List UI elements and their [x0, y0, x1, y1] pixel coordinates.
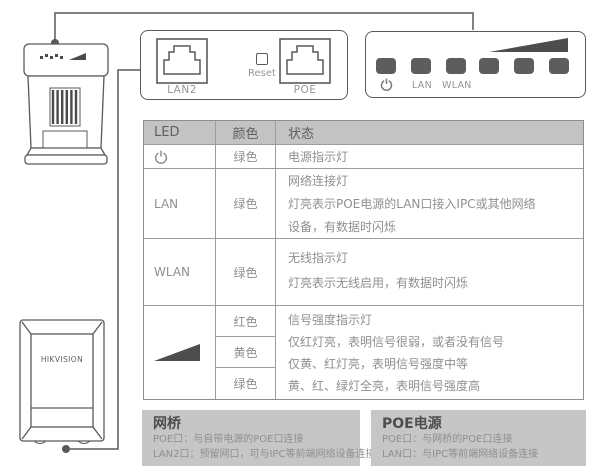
signal-color-cells: 红色 黄色 绿色 [216, 306, 276, 399]
power-status: 电源指示灯 [276, 145, 583, 169]
bridge-rear-device [24, 44, 108, 164]
wlan-row-label: WLAN [144, 239, 216, 306]
lan2-port-icon [156, 38, 208, 84]
callout-dot-top [51, 39, 59, 47]
signal-status-line: 黄、红、绿灯全亮，表明信号强度高 [288, 375, 577, 397]
port-panel: LAN2 Reset POE [140, 30, 348, 100]
lan-status: 网络连接灯 灯亮表示POE电源的LAN口接入IPC或其他网络 设备，有数据时闪烁 [276, 169, 583, 239]
wlan-status: 无线指示灯 灯亮表示无线启用，有数据时闪烁 [276, 239, 583, 306]
poe-port-icon [279, 38, 331, 84]
wlan-color: 绿色 [216, 239, 276, 306]
lan-row-label: LAN [144, 169, 216, 239]
signal-color-red: 红色 [216, 306, 275, 337]
wlan-led-label: WLAN [442, 80, 472, 91]
power-led [376, 58, 396, 74]
header-status: 状态 [276, 121, 583, 145]
signal-led-red [479, 58, 499, 74]
signal-color-green: 绿色 [216, 368, 275, 399]
power-icon [154, 150, 168, 164]
signal-wedge-icon [489, 38, 568, 52]
bridge-rear-led-marks [40, 53, 86, 60]
signal-status: 信号强度指示灯 仅红灯亮，表明信号很弱，或者没有信号 仅黄、红灯亮，表明信号强度… [276, 306, 583, 399]
header-color: 颜色 [216, 121, 276, 145]
signal-led-yellow [514, 58, 534, 74]
brand-label: HIKVISION [41, 355, 83, 364]
lan-color: 绿色 [216, 169, 276, 239]
poe-note-line: POE口：与网桥的POE口连接 [382, 433, 586, 448]
power-row-icon-cell [144, 145, 216, 169]
wlan-status-line: 无线指示灯 [288, 246, 577, 271]
lan-status-line: 设备，有数据时闪烁 [288, 216, 577, 239]
lan-led-label: LAN [412, 80, 432, 91]
bridge-rear-vents [53, 90, 76, 124]
poe-note-section: POE电源 POE口：与网桥的POE口连接 LAN口：与IPC等前端网络设备连接 [371, 410, 586, 466]
bridge-front-device [20, 320, 104, 444]
bridge-note-line: LAN2口：预留网口，可与IPC等前端网络设备连接 [153, 448, 360, 463]
callout-dot-bottom [62, 445, 70, 453]
signal-wedge-icon [154, 344, 200, 361]
lan-status-line: 网络连接灯 [288, 170, 577, 193]
header-led: LED [144, 121, 216, 145]
bridge-note-section: 网桥 POE口：与自带电源的POE口连接 LAN2口：预留网口，可与IPC等前端… [142, 410, 360, 466]
bridge-note-line: POE口：与自带电源的POE口连接 [153, 433, 360, 448]
lan-led [411, 58, 431, 74]
lan2-port-label: LAN2 [156, 84, 208, 96]
reset-button [256, 53, 268, 65]
poe-note-title: POE电源 [382, 415, 586, 433]
signal-status-line: 仅红灯亮，表明信号很弱，或者没有信号 [288, 331, 577, 353]
bridge-note-title: 网桥 [153, 415, 360, 433]
signal-color-yellow: 黄色 [216, 337, 275, 368]
wlan-led [446, 58, 466, 74]
led-indicator-panel: LAN WLAN [365, 31, 586, 98]
power-icon [380, 78, 393, 91]
lan-status-line: 灯亮表示POE电源的LAN口接入IPC或其他网络 [288, 193, 577, 216]
power-color: 绿色 [216, 145, 276, 169]
poe-note-line: LAN口：与IPC等前端网络设备连接 [382, 448, 586, 463]
led-status-table: LED 颜色 状态 绿色 电源指示灯 LAN 绿色 网络连接灯 灯亮表示POE电… [143, 120, 584, 400]
signal-status-line: 信号强度指示灯 [288, 309, 577, 331]
signal-led-green [549, 58, 569, 74]
poe-port-label: POE [279, 84, 331, 96]
wlan-status-line: 灯亮表示无线启用，有数据时闪烁 [288, 271, 577, 296]
manual-diagram-page: HIKVISION LAN2 Reset POE LAN WLAN [0, 0, 600, 474]
signal-row-icon-cell [144, 306, 216, 399]
signal-status-line: 仅黄、红灯亮，表明信号强度中等 [288, 353, 577, 375]
